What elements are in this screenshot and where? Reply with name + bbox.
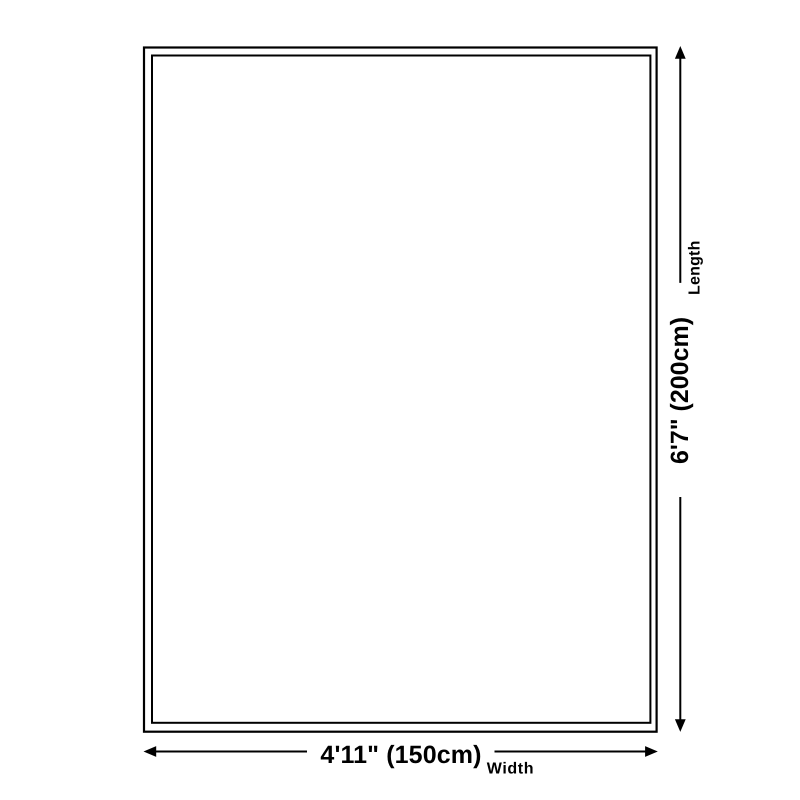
svg-text:Width: Width: [487, 761, 534, 778]
svg-text:Length: Length: [687, 240, 704, 295]
svg-text:4'11" (150cm): 4'11" (150cm): [320, 741, 481, 769]
svg-text:6'7" (200cm): 6'7" (200cm): [666, 317, 694, 464]
